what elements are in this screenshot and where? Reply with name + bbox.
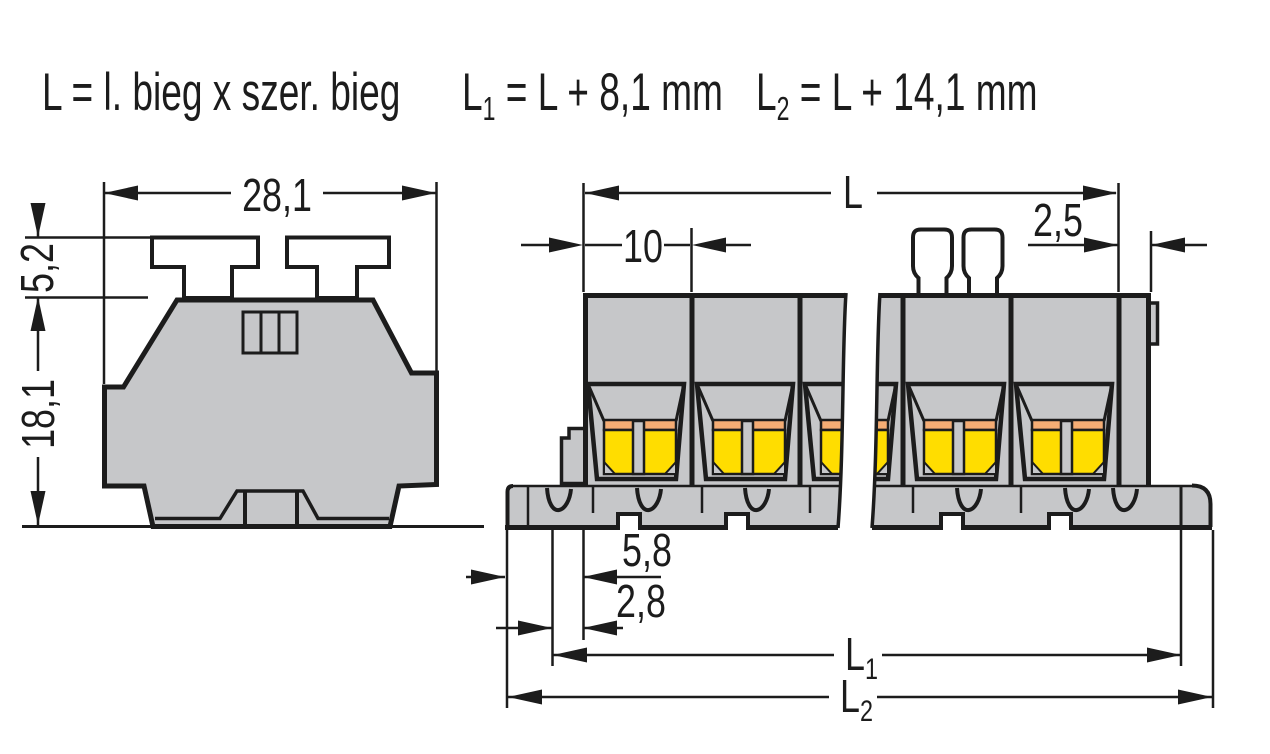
formula-l: L = l. bieg x szer. bieg (42, 62, 400, 121)
dim-label-5-2: 5,2 (12, 243, 63, 293)
rail-notch (941, 514, 963, 530)
rail-notch (726, 514, 748, 530)
side-view: 28,1 5,2 18,1 (12, 170, 484, 527)
dim-label-18-1: 18,1 (13, 379, 64, 449)
push-button (913, 230, 952, 297)
clamp-cell (908, 384, 1004, 479)
clip-right (287, 238, 389, 299)
formula-line: L = l. bieg x szer. bieg L1 = L + 8,1 mm… (42, 62, 1038, 128)
clamp-cell (588, 384, 684, 479)
dim-label-2-5: 2,5 (1033, 195, 1083, 246)
foot-strip (870, 486, 1211, 529)
dim-label-28-1: 28,1 (242, 170, 312, 221)
formula-l1: L1 = L + 8,1 mm (462, 62, 723, 128)
push-button (964, 230, 1003, 297)
dim-label-L: L (843, 167, 863, 218)
dim-L1: L1 (507, 530, 1213, 708)
dim-label-10: 10 (623, 221, 663, 272)
formula-l2: L2 = L + 14,1 mm (756, 62, 1038, 128)
clamp-cell (697, 384, 793, 479)
clip-left (152, 238, 258, 299)
drawing-canvas: L = l. bieg x szer. bieg L1 = L + 8,1 mm… (0, 0, 1270, 754)
end-stop-tab (562, 429, 584, 484)
break-lines (838, 293, 880, 528)
front-view: L 10 2,5 (466, 167, 1213, 728)
dim-foot-2-8: 2,8 (496, 576, 666, 636)
dim-label-5-8: 5,8 (622, 525, 672, 576)
clamp-cell (1016, 384, 1112, 479)
rail-notch (1049, 514, 1071, 530)
foot-strip (507, 486, 850, 529)
end-plate-tab (1150, 303, 1158, 344)
dim-label-2-8: 2,8 (616, 576, 666, 627)
side-top-clips (152, 238, 389, 299)
technical-drawing-page: L = l. bieg x szer. bieg L1 = L + 8,1 mm… (0, 0, 1270, 754)
dim-pitch-10: 10 (521, 221, 751, 292)
